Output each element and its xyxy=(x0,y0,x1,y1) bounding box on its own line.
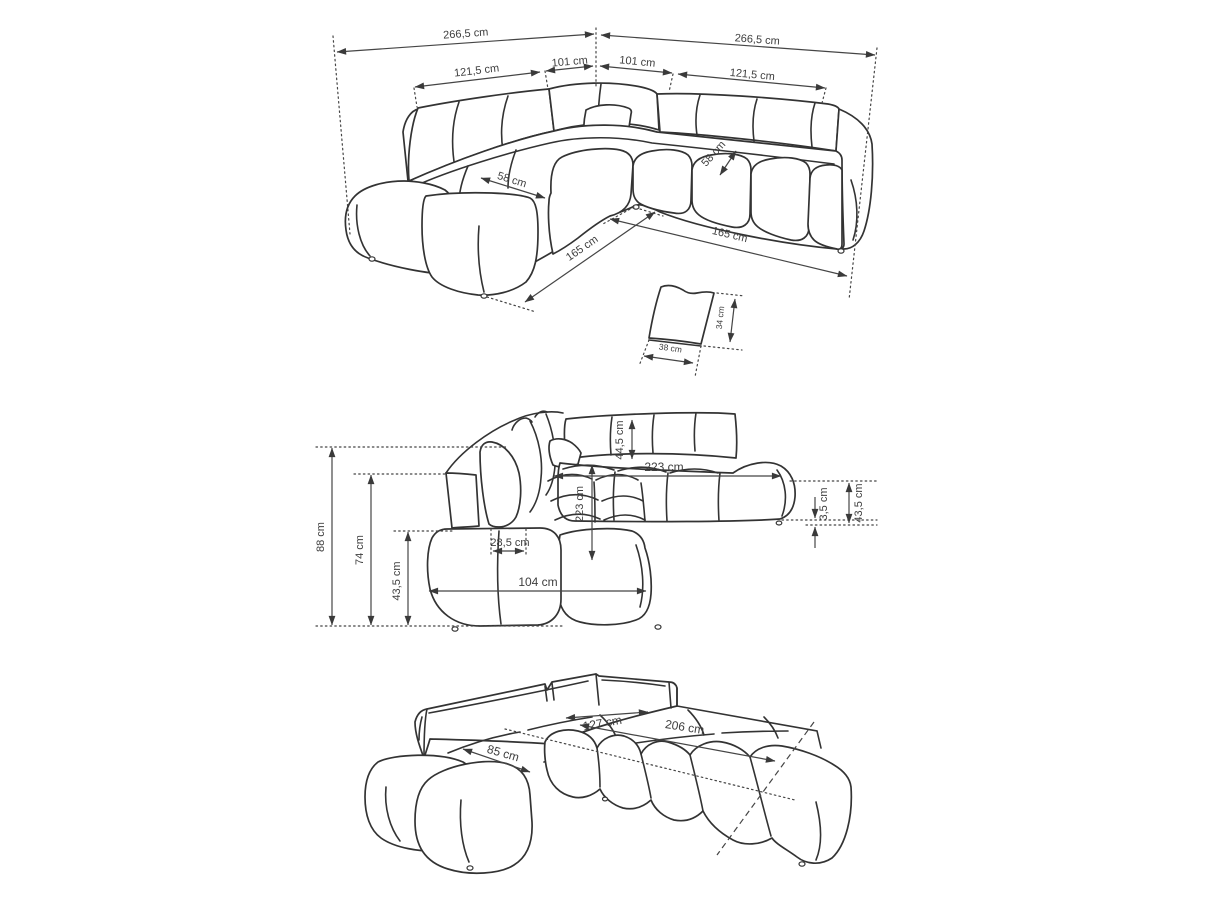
svg-text:34 cm: 34 cm xyxy=(714,306,726,330)
svg-text:101 cm: 101 cm xyxy=(619,54,656,70)
svg-text:43,5 cm: 43,5 cm xyxy=(391,561,403,600)
svg-text:38 cm: 38 cm xyxy=(658,341,682,354)
svg-text:104 cm: 104 cm xyxy=(518,575,557,589)
svg-text:43,5 cm: 43,5 cm xyxy=(853,483,865,522)
svg-text:223 cm: 223 cm xyxy=(644,460,683,474)
svg-text:3,5 cm: 3,5 cm xyxy=(818,487,830,520)
svg-text:28,5 cm: 28,5 cm xyxy=(490,537,529,549)
svg-text:88 cm: 88 cm xyxy=(315,522,327,552)
svg-text:121,5 cm: 121,5 cm xyxy=(729,67,775,83)
svg-text:44,5 cm: 44,5 cm xyxy=(614,420,626,459)
svg-text:223 cm: 223 cm xyxy=(574,486,586,522)
svg-text:266,5 cm: 266,5 cm xyxy=(443,26,489,41)
svg-text:74 cm: 74 cm xyxy=(354,535,366,565)
